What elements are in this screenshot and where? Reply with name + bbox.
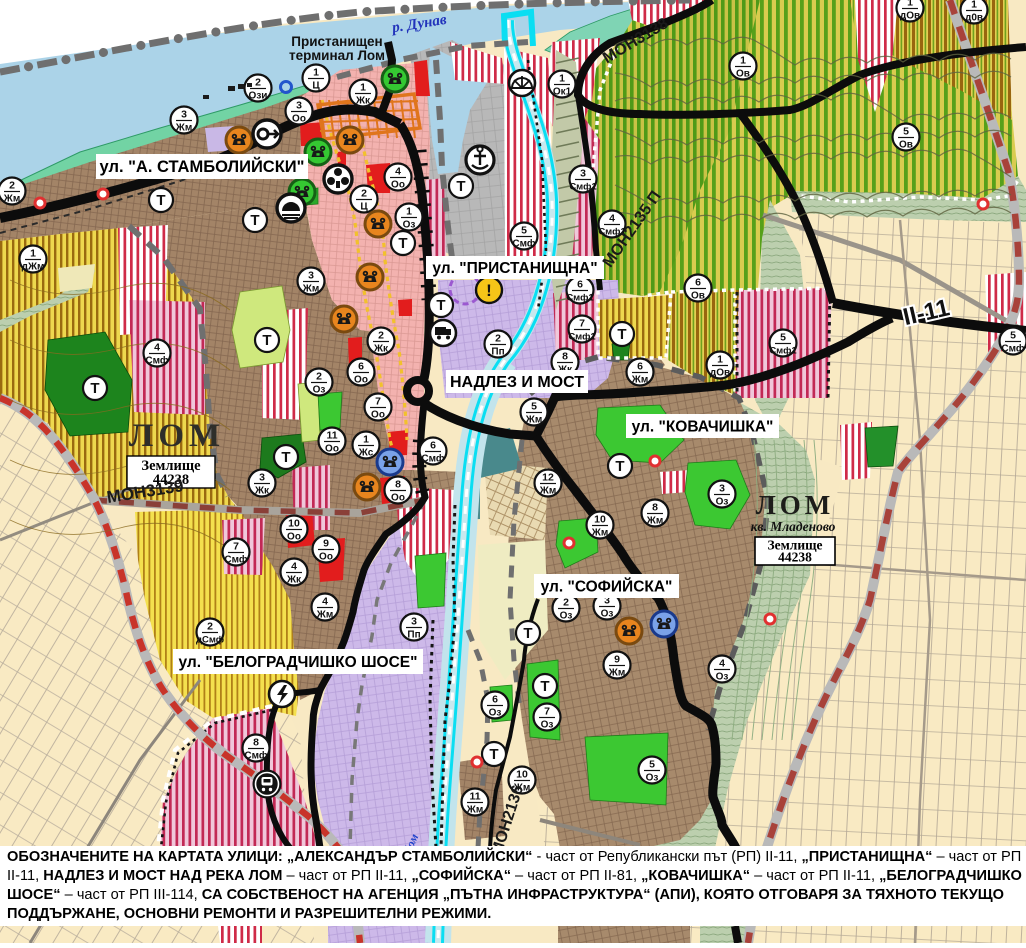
svg-text:12: 12	[542, 472, 554, 484]
svg-text:Пп: Пп	[407, 630, 420, 641]
svg-text:Оз: Оз	[541, 720, 554, 731]
svg-text:ПОДДЪРЖАНЕ, ОСНОВНИ РЕМОНТИ И: ПОДДЪРЖАНЕ, ОСНОВНИ РЕМОНТИ И РАЗРЕШИТЕЛ…	[7, 906, 491, 922]
svg-text:Т: Т	[456, 178, 465, 195]
svg-text:Оз: Оз	[403, 220, 416, 231]
svg-text:Т: Т	[436, 297, 445, 314]
svg-text:9: 9	[614, 654, 620, 666]
svg-text:Жк: Жк	[254, 486, 270, 497]
svg-text:дЖм: дЖм	[22, 262, 45, 273]
svg-text:1: 1	[313, 67, 319, 79]
svg-text:1: 1	[559, 73, 565, 85]
svg-text:3: 3	[580, 168, 586, 180]
svg-text:Т: Т	[281, 449, 290, 466]
svg-text:Жм: Жм	[316, 610, 333, 621]
svg-text:Смф: Смф	[421, 453, 444, 465]
svg-text:Смф: Смф	[244, 750, 267, 762]
svg-text:1: 1	[717, 354, 723, 366]
svg-text:Смф1: Смф1	[566, 293, 594, 304]
svg-text:4: 4	[609, 213, 615, 225]
svg-text:Жс: Жс	[358, 448, 374, 459]
svg-text:5: 5	[1010, 330, 1016, 342]
svg-text:Т: Т	[398, 235, 407, 252]
svg-text:4: 4	[291, 561, 297, 573]
svg-text:11: 11	[469, 791, 480, 803]
svg-text:7: 7	[544, 706, 550, 718]
svg-text:ул. "ПРИСТАНИЩНА": ул. "ПРИСТАНИЩНА"	[432, 260, 597, 277]
svg-text:5: 5	[521, 225, 527, 237]
svg-text:дОв: дОв	[710, 368, 730, 379]
svg-text:4: 4	[154, 342, 160, 354]
svg-text:Смф1: Смф1	[769, 346, 797, 357]
svg-text:Жм: Жм	[539, 486, 556, 497]
svg-text:3: 3	[719, 483, 725, 495]
svg-text:5: 5	[903, 126, 909, 138]
svg-text:1: 1	[907, 0, 913, 9]
svg-text:10: 10	[516, 769, 528, 781]
svg-text:1: 1	[406, 206, 412, 218]
svg-text:Оо: Оо	[292, 114, 306, 125]
svg-text:1: 1	[30, 248, 36, 260]
svg-text:3: 3	[411, 616, 417, 628]
svg-text:8: 8	[652, 502, 658, 514]
svg-text:Жм: Жм	[175, 123, 192, 134]
svg-text:4: 4	[322, 596, 328, 608]
svg-text:д0в: д0в	[965, 13, 983, 24]
svg-text:Оо: Оо	[325, 444, 339, 455]
svg-text:Т: Т	[90, 380, 99, 397]
svg-text:2: 2	[316, 371, 322, 383]
svg-text:9: 9	[323, 538, 329, 550]
svg-text:Пристанищен: Пристанищен	[291, 34, 382, 49]
svg-text:Жм: Жм	[646, 516, 663, 527]
svg-text:ШОСЕ“ – част от РП III-114, СА: ШОСЕ“ – част от РП III-114, СА СОБСТВЕНО…	[7, 887, 1004, 903]
svg-text:Т: Т	[250, 212, 259, 229]
svg-text:Смф: Смф	[224, 554, 247, 566]
svg-text:Ц: Ц	[312, 81, 320, 92]
svg-text:Смф1: Смф1	[569, 182, 597, 193]
svg-text:Оз: Оз	[313, 385, 326, 396]
svg-text:5: 5	[531, 401, 537, 413]
svg-text:Оз: Оз	[560, 611, 573, 622]
svg-text:2: 2	[361, 188, 367, 200]
svg-text:Ов: Ов	[736, 69, 750, 80]
svg-text:Жк: Жк	[373, 344, 389, 355]
svg-text:7: 7	[375, 396, 381, 408]
svg-text:Жм: Жм	[525, 415, 542, 426]
svg-text:дСмф: дСмф	[196, 635, 224, 646]
svg-text:2: 2	[207, 621, 213, 633]
svg-text:1: 1	[971, 0, 977, 11]
svg-text:Жм: Жм	[302, 284, 319, 295]
svg-text:5: 5	[780, 332, 786, 344]
svg-text:3: 3	[259, 472, 265, 484]
svg-text:1: 1	[360, 82, 366, 94]
svg-text:Ок1: Ок1	[553, 87, 572, 98]
svg-text:2: 2	[378, 330, 384, 342]
svg-text:6: 6	[492, 694, 498, 706]
svg-text:Смф1: Смф1	[568, 332, 596, 343]
svg-text:Жк: Жк	[355, 96, 371, 107]
svg-text:2: 2	[495, 333, 501, 345]
svg-text:2: 2	[9, 180, 15, 192]
svg-text:!: !	[486, 281, 492, 300]
svg-text:2: 2	[255, 77, 261, 89]
svg-text:НАДЛЕЗ И МОСТ: НАДЛЕЗ И МОСТ	[450, 374, 584, 391]
svg-text:Оо: Оо	[391, 180, 405, 191]
svg-text:Ов: Ов	[899, 140, 913, 151]
svg-text:4: 4	[719, 658, 725, 670]
svg-text:Оо: Оо	[371, 410, 385, 421]
svg-text:44238: 44238	[778, 550, 812, 565]
svg-text:Оз: Оз	[646, 773, 659, 784]
svg-text:1: 1	[363, 434, 369, 446]
svg-text:Жм: Жм	[631, 375, 648, 386]
svg-text:ул. "БЕЛОГРАДЧИШКО ШОСЕ": ул. "БЕЛОГРАДЧИШКО ШОСЕ"	[179, 654, 418, 671]
svg-text:Смф: Смф	[145, 355, 168, 367]
svg-text:8: 8	[395, 479, 401, 491]
svg-text:Т: Т	[156, 192, 165, 209]
svg-text:3: 3	[181, 109, 187, 121]
svg-text:Жм: Жм	[591, 528, 608, 539]
svg-text:8: 8	[562, 351, 568, 363]
svg-text:ул. "А. СТАМБОЛИЙСКИ": ул. "А. СТАМБОЛИЙСКИ"	[100, 157, 305, 176]
svg-text:Оо: Оо	[319, 552, 333, 563]
svg-text:6: 6	[430, 440, 436, 452]
svg-text:кв. Младеново: кв. Младеново	[751, 519, 836, 534]
svg-text:ЛОМ: ЛОМ	[756, 490, 835, 520]
svg-text:дОв: дОв	[900, 11, 920, 22]
svg-text:3: 3	[308, 270, 314, 282]
svg-text:Пп: Пп	[491, 347, 504, 358]
svg-text:Т: Т	[523, 625, 532, 642]
svg-text:ул. "КОВАЧИШКА": ул. "КОВАЧИШКА"	[632, 418, 774, 435]
svg-text:терминал Лом: терминал Лом	[289, 48, 385, 63]
svg-text:2: 2	[563, 597, 569, 609]
svg-text:Т: Т	[489, 746, 498, 763]
svg-text:1: 1	[740, 55, 746, 67]
svg-text:Смф: Смф	[1001, 343, 1024, 355]
svg-text:Жм: Жм	[608, 668, 625, 679]
svg-text:6: 6	[577, 279, 583, 291]
svg-text:11: 11	[326, 430, 337, 442]
svg-text:ЛОМ: ЛОМ	[129, 418, 225, 454]
svg-text:ул. "СОФИЙСКА": ул. "СОФИЙСКА"	[541, 577, 673, 595]
svg-text:8: 8	[253, 737, 259, 749]
svg-text:Оо: Оо	[391, 493, 405, 504]
svg-text:Т: Т	[615, 458, 624, 475]
svg-text:Т: Т	[617, 326, 626, 343]
svg-text:II-11, НАДЛЕЗ И МОСТ НАД РЕКА: II-11, НАДЛЕЗ И МОСТ НАД РЕКА ЛОМ – част…	[7, 866, 1022, 884]
svg-text:6: 6	[637, 361, 643, 373]
svg-text:Оз: Оз	[489, 708, 502, 719]
svg-text:Ози: Ози	[249, 91, 268, 102]
svg-text:5: 5	[649, 759, 655, 771]
svg-text:Т: Т	[262, 332, 271, 349]
svg-text:ОБОЗНАЧЕНИТЕ НА КАРТАТА УЛИЦИ:: ОБОЗНАЧЕНИТЕ НА КАРТАТА УЛИЦИ: „АЛЕКСАНД…	[7, 847, 1021, 865]
svg-text:Жм: Жм	[3, 194, 20, 205]
svg-text:Т: Т	[540, 678, 549, 695]
svg-text:Жк: Жк	[286, 575, 302, 586]
svg-text:3: 3	[296, 100, 302, 112]
svg-text:4: 4	[395, 166, 401, 178]
svg-text:Смф: Смф	[512, 238, 535, 250]
svg-text:10: 10	[288, 518, 300, 530]
svg-text:Оз: Оз	[601, 609, 614, 620]
svg-text:10: 10	[594, 514, 606, 526]
svg-text:6: 6	[358, 361, 364, 373]
svg-text:Ц: Ц	[360, 202, 368, 213]
svg-text:7: 7	[579, 318, 585, 330]
svg-text:Оз: Оз	[716, 672, 729, 683]
svg-text:Оз: Оз	[716, 497, 729, 508]
svg-text:Жм: Жм	[466, 805, 483, 816]
svg-text:Оо: Оо	[287, 532, 301, 543]
svg-text:Ов: Ов	[691, 291, 705, 302]
svg-text:Оо: Оо	[354, 375, 368, 386]
svg-text:6: 6	[695, 277, 701, 289]
svg-text:7: 7	[233, 541, 239, 553]
